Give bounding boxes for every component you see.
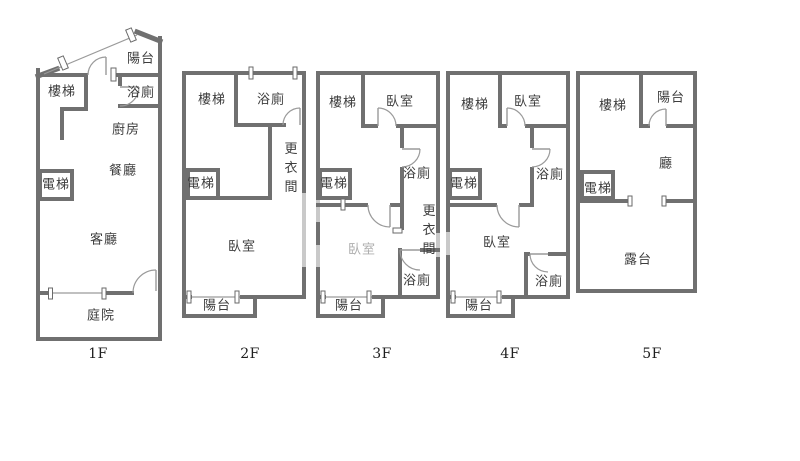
room-label-5f-terrace: 露台 bbox=[624, 254, 652, 267]
room-label-3f-elevator: 電梯 bbox=[320, 178, 348, 191]
room-label-5f-balcony: 陽台 bbox=[657, 92, 685, 105]
room-label-2f-elevator: 電梯 bbox=[187, 178, 215, 191]
room-label-2f-balcony: 陽台 bbox=[203, 300, 231, 313]
floor-caption-5f: 5F bbox=[642, 346, 662, 362]
room-label-3f-bath-upper: 浴廁 bbox=[403, 168, 431, 181]
room-label-1f-balcony: 陽台 bbox=[127, 53, 155, 66]
room-label-2f-bath: 浴廁 bbox=[257, 94, 285, 107]
room-label-1f-bath: 浴廁 bbox=[127, 87, 155, 100]
room-label-1f-stairs: 樓梯 bbox=[48, 86, 76, 99]
room-label-4f-elevator: 電梯 bbox=[450, 178, 478, 191]
floor-caption-4f: 4F bbox=[500, 346, 520, 362]
room-label-5f-hall: 廳 bbox=[659, 158, 673, 171]
room-label-4f-stairs: 樓梯 bbox=[461, 99, 489, 112]
floor-plan-drawing bbox=[0, 0, 800, 461]
room-label-3f-dressing: 更衣間 bbox=[421, 204, 434, 261]
room-label-5f-stairs: 樓梯 bbox=[599, 100, 627, 113]
floor-caption-3f: 3F bbox=[372, 346, 392, 362]
room-label-4f-bedroom-top: 臥室 bbox=[514, 96, 542, 109]
room-label-1f-yard: 庭院 bbox=[87, 310, 115, 323]
floor-plan-canvas: 陽台 樓梯 浴廁 廚房 餐廳 電梯 客廳 庭院 1F 樓梯 浴廁 更衣間 電梯 … bbox=[0, 0, 800, 461]
room-label-2f-dressing: 更衣間 bbox=[283, 142, 296, 199]
room-label-5f-elevator: 電梯 bbox=[584, 183, 612, 196]
room-label-2f-stairs: 樓梯 bbox=[198, 94, 226, 107]
room-label-1f-living: 客廳 bbox=[90, 234, 118, 247]
room-label-3f-stairs: 樓梯 bbox=[329, 97, 357, 110]
room-label-4f-bath-lower: 浴廁 bbox=[535, 276, 563, 289]
room-label-3f-bath-lower: 浴廁 bbox=[403, 275, 431, 288]
room-label-4f-balcony: 陽台 bbox=[465, 300, 493, 313]
room-label-4f-bath-upper: 浴廁 bbox=[536, 169, 564, 182]
floor-caption-2f: 2F bbox=[240, 346, 260, 362]
room-label-1f-elevator: 電梯 bbox=[42, 179, 70, 192]
room-label-1f-dining: 餐廳 bbox=[109, 165, 137, 178]
room-label-4f-bedroom-main: 臥室 bbox=[483, 237, 511, 250]
floor-plan-1f-details bbox=[38, 28, 160, 299]
room-label-3f-bedroom-top: 臥室 bbox=[386, 96, 414, 109]
room-label-1f-kitchen: 廚房 bbox=[112, 124, 140, 137]
room-label-3f-balcony: 陽台 bbox=[335, 300, 363, 313]
room-label-3f-bedroom-main: 臥室 bbox=[348, 244, 376, 257]
room-label-2f-bedroom: 臥室 bbox=[228, 241, 256, 254]
floor-caption-1f: 1F bbox=[88, 346, 108, 362]
